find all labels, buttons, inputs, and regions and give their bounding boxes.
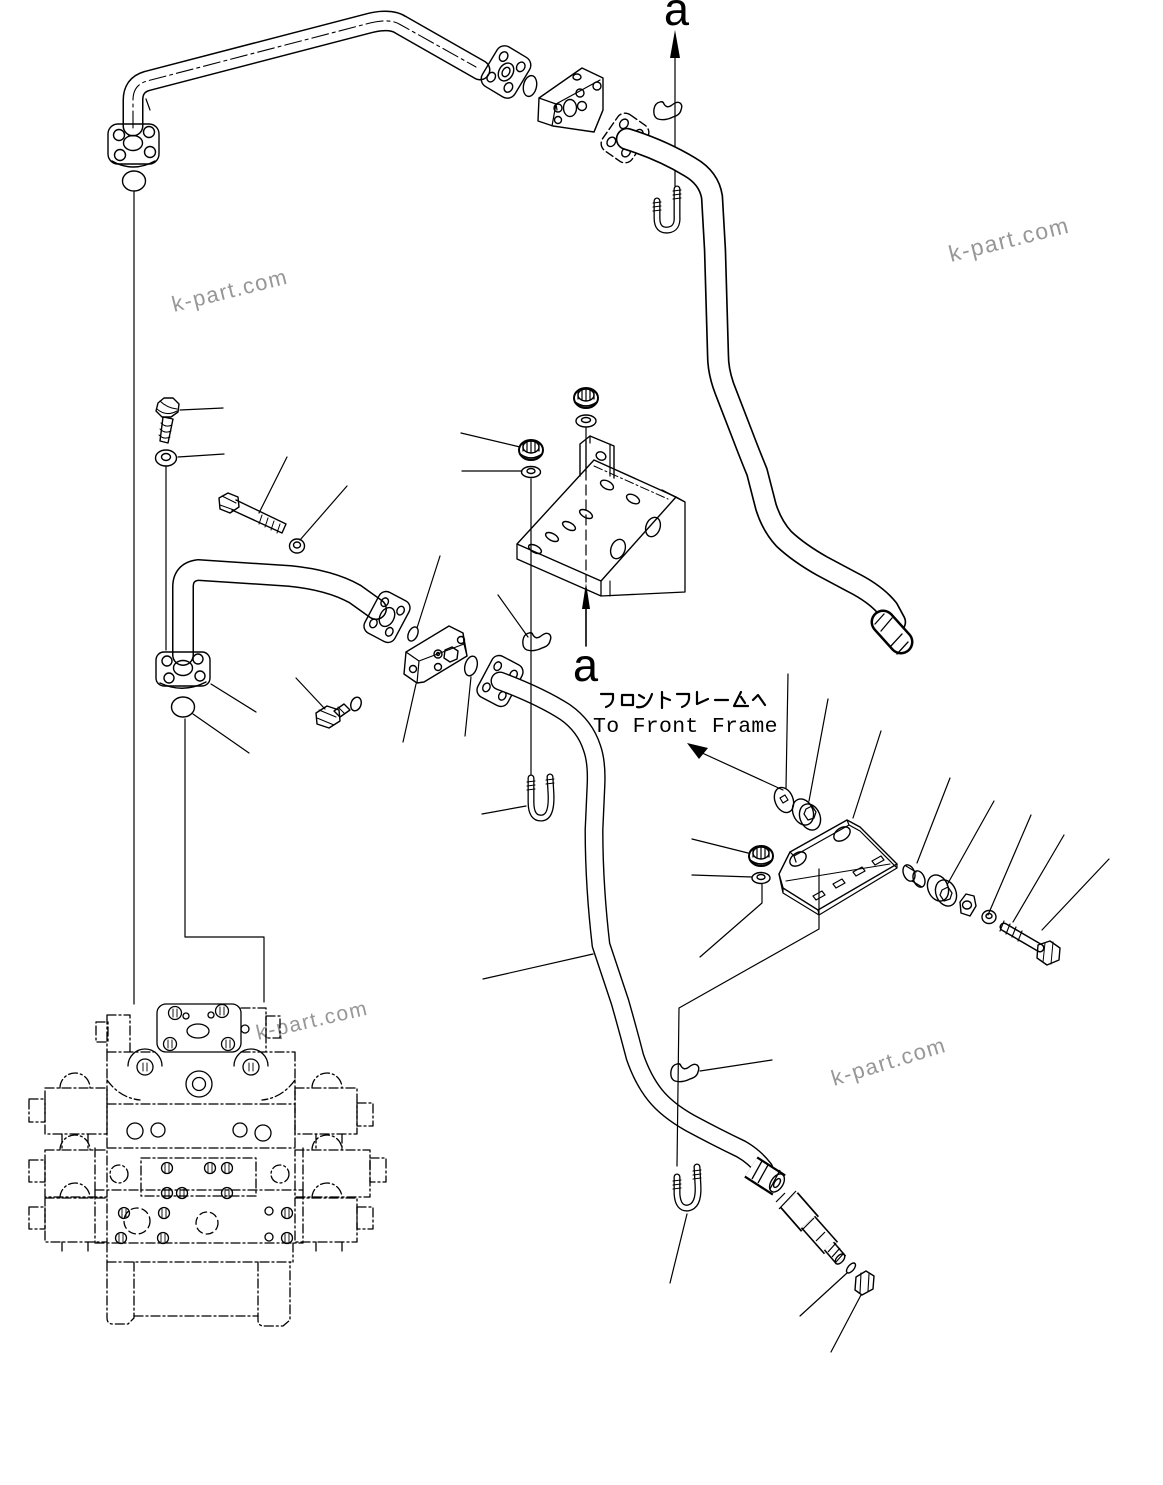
svg-text:k-part.com: k-part.com [169,264,290,317]
svg-text:k-part.com: k-part.com [946,212,1072,267]
svg-text:k-part.com: k-part.com [828,1032,949,1091]
svg-text:a: a [663,0,691,39]
svg-text:a: a [572,643,600,695]
svg-text:To Front Frame: To Front Frame [593,715,778,739]
svg-text:k-part.com: k-part.com [254,997,370,1045]
